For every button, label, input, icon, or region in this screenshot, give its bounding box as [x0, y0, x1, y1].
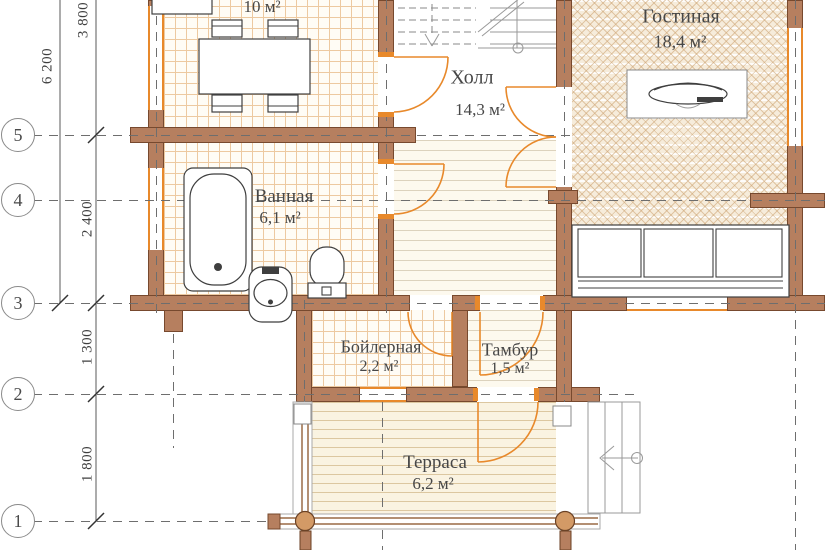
post-footing-right [560, 531, 571, 550]
railing-post-top-left [294, 404, 311, 424]
post-footing-left [300, 531, 311, 550]
boiler-name-label: Бойлерная [341, 337, 422, 358]
dim-upper: 3 800 [76, 2, 93, 38]
kitchen-area-label: 10 м² [243, 0, 280, 17]
kitchen-counter [152, 0, 212, 14]
axis-bubble-5: 5 [1, 118, 35, 152]
door-jamb [378, 112, 394, 117]
entrance-steps [588, 402, 643, 513]
bathroom-name-label: Ванная [255, 186, 314, 208]
bathroom-door [394, 164, 444, 214]
terrace-door [478, 402, 538, 462]
floor-plan: 10 м² Холл 14,3 м² Гостиная 18,4 м² Ванн… [0, 0, 825, 550]
axis-bubble-3: 3 [1, 286, 35, 320]
sofa [572, 225, 789, 297]
round-post-right [556, 512, 575, 531]
staircase [398, 0, 556, 53]
axis-bubble-4: 4 [1, 183, 35, 217]
living-area-label: 18,4 м² [654, 32, 707, 53]
hall-area-label: 14,3 м² [455, 100, 505, 120]
door-jamb [540, 296, 545, 310]
door-jamb [378, 214, 394, 219]
axis-bubble-1: 1 [1, 504, 35, 538]
sink [249, 267, 292, 322]
dining-table [199, 20, 310, 112]
dim-overall: 6 200 [40, 48, 57, 84]
living-name-label: Гостиная [642, 6, 719, 29]
kitchen-door [394, 57, 448, 112]
stair-down-arrow [425, 4, 439, 46]
boiler-area-label: 2,2 м² [360, 358, 399, 376]
toilet [308, 247, 346, 298]
bathroom-area-label: 6,1 м² [259, 208, 300, 228]
dim-middle: 2 400 [80, 201, 97, 237]
vestibule-area-label: 1,5 м² [491, 360, 530, 378]
terrace-area-label: 6,2 м² [412, 474, 453, 494]
door-jamb [378, 159, 394, 164]
vestibule-name-label: Тамбур [482, 340, 538, 361]
terrace-name-label: Терраса [403, 452, 467, 474]
dim-lower: 1 300 [80, 329, 97, 365]
tv-console [627, 70, 747, 118]
bathtub [184, 168, 252, 291]
railing-post-top-right [553, 406, 571, 426]
door-jamb [378, 52, 394, 57]
living-double-door [506, 87, 556, 187]
door-jamb [534, 388, 539, 401]
hall-name-label: Холл [451, 67, 494, 90]
door-jamb [475, 296, 480, 310]
round-post-left [296, 512, 315, 531]
dim-bottom: 1 800 [80, 446, 97, 482]
railing-end-block [268, 514, 280, 529]
axis-bubble-2: 2 [1, 377, 35, 411]
door-jamb [473, 388, 478, 401]
